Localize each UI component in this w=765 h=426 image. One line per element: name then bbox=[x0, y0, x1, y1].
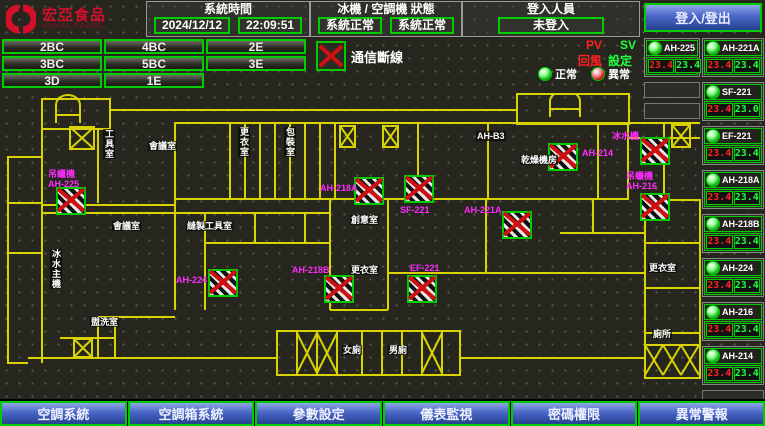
unit-pv-value: 23.4 bbox=[706, 103, 733, 117]
logo-subname: HUNYA FOODS bbox=[42, 23, 106, 30]
unit-status-led-icon bbox=[706, 129, 720, 143]
header-bar: 宏亞食品 HUNYA FOODS 系統時間 2024/12/12 22:09:5… bbox=[0, 0, 765, 37]
unit-ah-218a: AH-218A23.423.4 bbox=[702, 170, 764, 209]
room-label: 縫製工具室 bbox=[186, 221, 233, 231]
unit-floor-label: AH-214 bbox=[582, 148, 613, 158]
nav-button-2[interactable]: 參數設定 bbox=[255, 401, 382, 426]
comm-fail-legend: 通信斷線 bbox=[316, 41, 403, 71]
unit-values-row: 23.423.0 bbox=[704, 101, 762, 119]
unit-ah-225: AH-22523.423.4 bbox=[644, 38, 700, 77]
room-label: 創意室 bbox=[350, 215, 379, 225]
unit-values-row: 23.423.4 bbox=[704, 365, 762, 383]
floor-button-grid: 2BC4BC2E3BC5BC3E3D1E bbox=[2, 39, 310, 88]
floor-button-2e[interactable]: 2E bbox=[206, 39, 306, 54]
unit-status-led-icon bbox=[706, 349, 720, 363]
logo-name: 宏亞食品 bbox=[42, 8, 106, 23]
unit-status-led-icon bbox=[706, 217, 720, 231]
unit-ah-221a: AH-221A23.423.4 bbox=[702, 38, 764, 77]
unit-name: AH-221A bbox=[722, 43, 760, 53]
comm-fail-unit-icon[interactable] bbox=[324, 275, 354, 303]
unit-floor-label: SF-221 bbox=[400, 205, 430, 215]
unit-name-row[interactable]: AH-218B bbox=[704, 216, 762, 232]
unit-pv-value: 23.4 bbox=[706, 59, 733, 73]
unit-floor-label: AH-218A bbox=[320, 183, 358, 193]
floor-button-4bc[interactable]: 4BC bbox=[104, 39, 204, 54]
unit-name: AH-216 bbox=[722, 307, 753, 317]
floor-button-2bc[interactable]: 2BC bbox=[2, 39, 102, 54]
unit-pv-value: 23.4 bbox=[706, 279, 733, 293]
abnormal-label: 異常 bbox=[608, 66, 630, 82]
login-logout-button[interactable]: 登入/登出 bbox=[644, 3, 762, 32]
floor-button-3bc[interactable]: 3BC bbox=[2, 56, 102, 71]
unit-pv-value: 23.4 bbox=[706, 147, 733, 161]
unit-floor-label: AH-218B bbox=[292, 265, 330, 275]
unit-status-led-icon bbox=[706, 173, 720, 187]
unit-values-row: 23.423.4 bbox=[704, 277, 762, 295]
unit-sv-value: 23.4 bbox=[734, 59, 761, 73]
room-label: 女廁 bbox=[342, 345, 362, 355]
unit-values-row: 23.423.4 bbox=[704, 57, 762, 75]
unit-status-led-icon bbox=[648, 41, 662, 55]
room-label: 工具室 bbox=[103, 129, 115, 159]
unit-floor-label: 吊蠟機AH-216 bbox=[626, 171, 657, 191]
nav-button-4[interactable]: 密碼權限 bbox=[511, 401, 638, 426]
room-label: 更衣室 bbox=[238, 127, 250, 157]
unit-name: AH-224 bbox=[722, 263, 753, 273]
room-label: 更衣室 bbox=[350, 265, 379, 275]
unit-values-row: 23.423.4 bbox=[704, 189, 762, 207]
unit-name-row[interactable]: EF-221 bbox=[704, 128, 762, 144]
unit-name-row[interactable]: AH-225 bbox=[646, 40, 698, 56]
floor-button-3e[interactable]: 3E bbox=[206, 56, 306, 71]
room-label: 更衣室 bbox=[648, 263, 677, 273]
sv-label: SV bbox=[620, 38, 636, 52]
unit-floor-label: 吊蠟機AH-225 bbox=[48, 169, 79, 189]
nav-button-0[interactable]: 空調系統 bbox=[0, 401, 127, 426]
unit-pv-value: 23.4 bbox=[706, 323, 733, 337]
comm-fail-unit-icon[interactable] bbox=[208, 269, 238, 297]
unit-values-row: 23.423.4 bbox=[704, 321, 762, 339]
machine-status-panel: 冰機 / 空調機 狀態 系統正常 系統正常 bbox=[310, 1, 462, 37]
room-label: 盥洗室 bbox=[90, 317, 119, 327]
normal-led-icon bbox=[538, 67, 552, 81]
machine-status-label: 冰機 / 空調機 狀態 bbox=[311, 2, 461, 17]
unit-name-row[interactable]: AH-214 bbox=[704, 348, 762, 364]
comm-fail-unit-icon[interactable] bbox=[56, 187, 86, 215]
unit-values-row: 23.423.4 bbox=[704, 233, 762, 251]
nav-button-1[interactable]: 空調箱系統 bbox=[128, 401, 255, 426]
unit-status-led-icon bbox=[706, 305, 720, 319]
unit-name-row[interactable]: SF-221 bbox=[704, 84, 762, 100]
unit-name-row[interactable]: AH-216 bbox=[704, 304, 762, 320]
status-legend: 正常 異常 bbox=[538, 66, 630, 82]
system-time-panel: 系統時間 2024/12/12 22:09:51 bbox=[146, 1, 310, 37]
unit-floor-label: AH-224 bbox=[176, 275, 207, 285]
unit-sv-value: 23.4 bbox=[675, 59, 701, 73]
floor-button-3d[interactable]: 3D bbox=[2, 73, 102, 88]
login-panel: 登入人員 未登入 bbox=[462, 1, 640, 37]
unit-status-led-icon bbox=[706, 41, 720, 55]
floorplan: 吊蠟機AH-225AH-224AH-218ASF-221AH-218BEF-22… bbox=[0, 93, 702, 397]
ahu-status: 系統正常 bbox=[390, 17, 454, 34]
comm-fail-unit-icon[interactable] bbox=[407, 275, 437, 303]
unit-pv-value: 23.4 bbox=[706, 191, 733, 205]
comm-fail-unit-icon[interactable] bbox=[502, 211, 532, 239]
unit-ef-221: EF-22123.423.4 bbox=[702, 126, 764, 165]
unit-sv-value: 23.4 bbox=[734, 235, 761, 249]
abnormal-led-icon bbox=[591, 67, 605, 81]
comm-fail-label: 通信斷線 bbox=[351, 47, 403, 66]
unit-name: EF-221 bbox=[722, 131, 752, 141]
unit-name-row[interactable]: AH-224 bbox=[704, 260, 762, 276]
unit-name: SF-221 bbox=[722, 87, 752, 97]
logo-icon bbox=[6, 4, 36, 34]
unit-ah-216: AH-21623.423.4 bbox=[702, 302, 764, 341]
room-label: AH-B3 bbox=[476, 131, 506, 141]
comm-fail-icon bbox=[316, 41, 346, 71]
system-date-value: 2024/12/12 bbox=[154, 17, 230, 34]
comm-fail-unit-icon[interactable] bbox=[640, 193, 670, 221]
bottom-nav: 空調系統空調箱系統參數設定儀表監視密碼權限異常警報 bbox=[0, 399, 765, 426]
chiller-status: 系統正常 bbox=[318, 17, 382, 34]
pv-label: PV bbox=[586, 38, 602, 52]
unit-name: AH-218B bbox=[722, 219, 760, 229]
pv-sv-header: PV SV 回風 設定 bbox=[578, 38, 636, 69]
unit-sv-value: 23.4 bbox=[734, 279, 761, 293]
unit-sv-value: 23.4 bbox=[734, 367, 761, 381]
unit-name: AH-218A bbox=[722, 175, 760, 185]
room-label: 會議室 bbox=[148, 141, 177, 151]
room-label: 包裝室 bbox=[284, 127, 296, 157]
unit-floor-label: AH-221A bbox=[464, 205, 502, 215]
floor-button-1e[interactable]: 1E bbox=[104, 73, 204, 88]
floor-button-5bc[interactable]: 5BC bbox=[104, 56, 204, 71]
unit-floor-label: EF-221 bbox=[410, 263, 440, 273]
unit-status-led-icon bbox=[706, 85, 720, 99]
system-time-label: 系統時間 bbox=[147, 2, 309, 17]
unit-values-row: 23.423.4 bbox=[704, 145, 762, 163]
unit-sf-221: SF-22123.423.0 bbox=[702, 82, 764, 121]
unit-name-row[interactable]: AH-218A bbox=[704, 172, 762, 188]
unit-sv-value: 23.4 bbox=[734, 191, 761, 205]
unit-ah-218b: AH-218B23.423.4 bbox=[702, 214, 764, 253]
comm-fail-unit-icon[interactable] bbox=[404, 175, 434, 203]
login-label: 登入人員 bbox=[463, 2, 639, 17]
room-label: 廁所 bbox=[652, 329, 672, 339]
nav-button-3[interactable]: 儀表監視 bbox=[383, 401, 510, 426]
unit-name: AH-225 bbox=[664, 43, 695, 53]
room-label: 乾燥機房 bbox=[520, 155, 558, 165]
room-label: 男廁 bbox=[388, 345, 408, 355]
comm-fail-unit-icon[interactable] bbox=[640, 137, 670, 165]
unit-ah-214: AH-21423.423.4 bbox=[702, 346, 764, 385]
unit-list-right: AH-221A23.423.4SF-22123.423.0EF-22123.42… bbox=[702, 38, 764, 426]
unit-pv-value: 23.4 bbox=[706, 367, 733, 381]
system-time-value: 22:09:51 bbox=[238, 17, 302, 34]
unit-pv-value: 23.4 bbox=[706, 235, 733, 249]
unit-status-led-icon bbox=[706, 261, 720, 275]
room-label: 冰水主機 bbox=[50, 249, 62, 289]
unit-name-row[interactable]: AH-221A bbox=[704, 40, 762, 56]
unit-name: AH-214 bbox=[722, 351, 753, 361]
comm-fail-unit-icon[interactable] bbox=[354, 177, 384, 205]
nav-button-5[interactable]: 異常警報 bbox=[638, 401, 765, 426]
hmi-screen: 宏亞食品 HUNYA FOODS 系統時間 2024/12/12 22:09:5… bbox=[0, 0, 765, 426]
company-logo: 宏亞食品 HUNYA FOODS bbox=[6, 2, 156, 35]
unit-sv-value: 23.4 bbox=[734, 147, 761, 161]
normal-label: 正常 bbox=[555, 66, 577, 82]
unit-values-row: 23.423.4 bbox=[646, 57, 698, 75]
unit-pv-value: 23.4 bbox=[648, 59, 674, 73]
login-status: 未登入 bbox=[498, 17, 604, 34]
unit-ah-224: AH-22423.423.4 bbox=[702, 258, 764, 297]
unit-sv-value: 23.4 bbox=[734, 323, 761, 337]
room-label: 會議室 bbox=[112, 221, 141, 231]
unit-sv-value: 23.0 bbox=[734, 103, 761, 117]
unit-floor-label: 冰水機 bbox=[612, 131, 639, 141]
